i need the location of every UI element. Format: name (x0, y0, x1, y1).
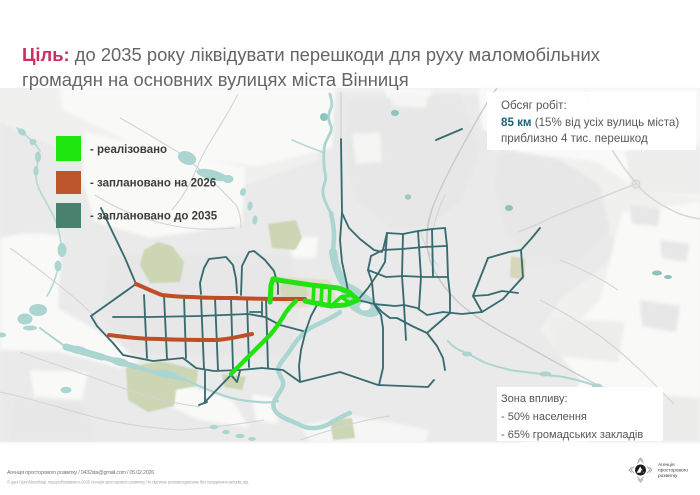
svg-text:© дані OpenStreetMap, переробл: © дані OpenStreetMap, перероблювалися 20… (7, 480, 249, 485)
svg-text:просторового: просторового (658, 469, 688, 474)
svg-text:Обсяг робіт:: Обсяг робіт: (501, 99, 567, 112)
svg-text:громадян на основних вулицях м: громадян на основних вулицях міста Вінни… (22, 69, 409, 90)
svg-text:- 50% населення: - 50% населення (501, 411, 587, 423)
svg-text:- 65% громадських закладів: - 65% громадських закладів (501, 429, 643, 441)
svg-text:- реалізовано: - реалізовано (90, 144, 167, 156)
svg-text:приблизно 4 тис. перешкод: приблизно 4 тис. перешкод (501, 132, 648, 145)
svg-text:Ціль: до 2035 року ліквідувати: Ціль: до 2035 року ліквідувати перешкоди… (22, 44, 600, 65)
svg-text:Агенція просторового розвитку: Агенція просторового розвитку / 0432sta@… (7, 470, 154, 476)
svg-text:Агенція: Агенція (658, 462, 675, 468)
svg-text:- заплановано до 2035: - заплановано до 2035 (90, 211, 218, 223)
svg-text:- заплановано на 2026: - заплановано на 2026 (90, 178, 216, 190)
svg-text:85 км (15% від усіх вулиць міс: 85 км (15% від усіх вулиць міста) (501, 116, 679, 129)
svg-text:розвитку: розвитку (658, 474, 678, 479)
svg-text:Зона впливу:: Зона впливу: (501, 393, 568, 405)
